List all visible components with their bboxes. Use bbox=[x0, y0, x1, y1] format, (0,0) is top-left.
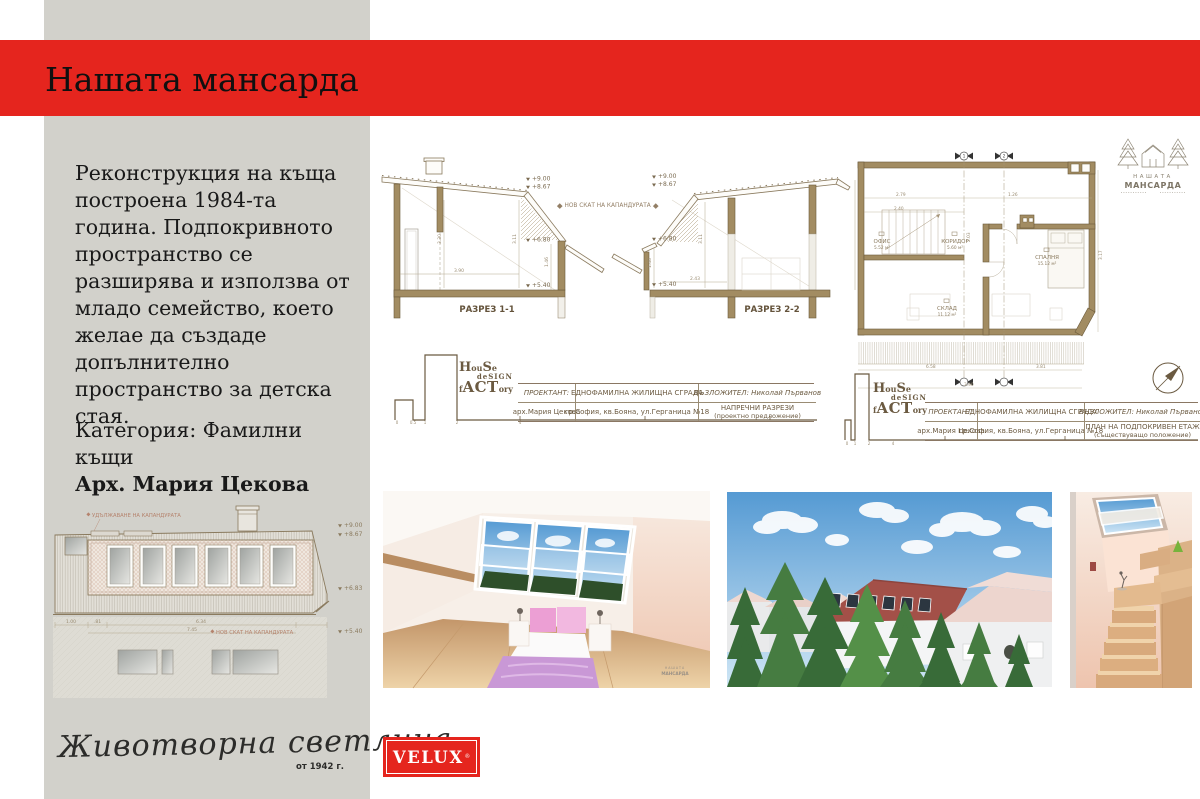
client-column: ВЪЗЛОЖИТЕЛ: Николай Първанов ПЛАН НА ПОД… bbox=[1084, 403, 1200, 440]
project-address: гр.София, кв.Бояна, ул.Герганица №18 bbox=[978, 422, 1084, 439]
annotation-text: УДЪЛЖАВАНЕ НА КАПАНДУРАТА bbox=[92, 513, 181, 519]
logo-part: ACT bbox=[462, 378, 498, 396]
dim-text: 1.46 bbox=[544, 257, 550, 267]
level-text: +9.00 bbox=[658, 173, 677, 180]
mansarda-logo-line1: НАШАТА bbox=[1133, 174, 1173, 180]
drawing-phase: (съществуващо положение) bbox=[1094, 431, 1191, 439]
dim-text: 1.00 bbox=[66, 619, 76, 625]
roof-annotation-text: НОВ СКАТ НА КАПАНДУРАТА bbox=[565, 203, 651, 209]
architect-name: Арх. Мария Цекова bbox=[75, 472, 309, 496]
logo-part: ory bbox=[499, 384, 513, 394]
dim-text: 2.40 bbox=[894, 206, 904, 212]
house-design-logo: HouSe deSIGN fACTory bbox=[873, 382, 927, 416]
logo-part: H bbox=[873, 381, 885, 396]
client-column: ВЪЗЛОЖИТЕЛ: Николай Първанов НАПРЕЧНИ РА… bbox=[698, 384, 816, 421]
render-staircase bbox=[1070, 492, 1192, 688]
north-arrow-icon bbox=[1146, 356, 1190, 400]
plan-doors bbox=[989, 229, 1017, 277]
pine-tree-icon bbox=[1118, 139, 1138, 169]
watermark-line1: НАШАТА bbox=[665, 666, 685, 670]
project-description: Реконструкция на къща построена 1984-та … bbox=[75, 160, 357, 430]
velux-logo-text: VELUX bbox=[393, 748, 464, 767]
mansarda-logo: НАШАТА МАНСАРДА bbox=[1116, 134, 1192, 196]
level-text: +5.40 bbox=[344, 628, 363, 635]
level-text: +8.67 bbox=[532, 184, 551, 191]
wall-edge bbox=[1070, 492, 1076, 688]
scale-tick: 0 bbox=[846, 441, 849, 446]
velux-logo-frame: VELUX ® bbox=[386, 740, 477, 774]
project-name: ЕДНОФАМИЛНА ЖИЛИЩНА СГРАДА bbox=[576, 384, 698, 403]
title-block-table: ПРОЕКТАНТ: арх.Мария Цекова ЕДНОФАМИЛНА … bbox=[925, 402, 1198, 441]
diamond-icon bbox=[557, 204, 562, 209]
dim-text: 7.45 bbox=[187, 627, 197, 633]
room-area: 5.60 м² bbox=[947, 245, 963, 251]
velux-logo: VELUX ® bbox=[383, 737, 480, 777]
level-text: +9.00 bbox=[532, 176, 551, 183]
dim-text: 6.34 bbox=[196, 619, 206, 625]
dim-text: 3.90 bbox=[454, 268, 464, 274]
project-column: ЕДНОФАМИЛНА ЖИЛИЩНА СГРАДА гр.София, кв.… bbox=[575, 384, 698, 421]
elevation-drawing: УДЪЛЖАВАНЕ НА КАПАНДУРАТА НОВ СКАТ НА КА… bbox=[44, 498, 370, 698]
dim-text: .81 bbox=[94, 619, 101, 625]
dim-text: 3.11 bbox=[698, 234, 704, 244]
client-name: ВЪЗЛОЖИТЕЛ: Николай Първанов bbox=[699, 384, 816, 403]
elevation-levels: +9.00 +8.67 +6.83 +5.40 bbox=[338, 522, 363, 635]
client-name: ВЪЗЛОЖИТЕЛ: Николай Първанов bbox=[1085, 403, 1200, 422]
section-marker: 1 bbox=[963, 154, 966, 159]
drawing-phase: (проектно предложение) bbox=[714, 412, 801, 420]
section-1-1-label: РАЗРЕЗ 1-1 bbox=[459, 305, 514, 315]
house-icon bbox=[1142, 145, 1164, 167]
dim-text: 3.11 bbox=[512, 234, 518, 244]
title-block-table: ПРОЕКТАНТ: арх.Мария Цекова ЕДНОФАМИЛНА … bbox=[518, 383, 814, 422]
picture-frame bbox=[1090, 562, 1096, 571]
velux-tagline: Животворна светлина bbox=[58, 724, 359, 765]
pine-tree-icon bbox=[1168, 139, 1188, 169]
section-2-2-drawing: +9.00 +8.67 +6.80 +5.40 1.48 2.43 3.11 Р… bbox=[642, 140, 870, 325]
level-text: +8.67 bbox=[658, 181, 677, 188]
room-name: КОРИДОР bbox=[941, 239, 969, 245]
scale-tick: 2 bbox=[456, 420, 459, 425]
plan-furniture bbox=[907, 230, 1084, 320]
dim-text: 2.79 bbox=[896, 192, 906, 198]
section-2-2-geometry bbox=[642, 178, 855, 319]
house-design-logo: HouSe deSIGN fACTory bbox=[459, 361, 513, 395]
render-interior: НАШАТА МАНСАРДА bbox=[383, 491, 710, 688]
section-marker: 2 bbox=[1003, 154, 1006, 159]
section-2-2-label: РАЗРЕЗ 2-2 bbox=[744, 305, 799, 315]
category-block: Категория: Фамилни къщи Арх. Мария Цеков… bbox=[75, 417, 357, 498]
scale-tick: 1 bbox=[424, 420, 427, 425]
level-text: +8.67 bbox=[344, 531, 363, 538]
project-column: ЕДНОФАМИЛНА ЖИЛИЩНА СГРАДА гр.София, кв.… bbox=[977, 403, 1084, 440]
level-text: +6.80 bbox=[658, 236, 677, 243]
scale-tick: 2 bbox=[868, 441, 871, 446]
mansarda-logo-line2: МАНСАРДА bbox=[1125, 181, 1182, 190]
room-name: СПАЛНЯ bbox=[1035, 255, 1059, 261]
title-block-sections: 0 0.5 1 2 4 HouSe deSIGN fACTory ПРОЕКТА… bbox=[395, 352, 817, 424]
room-area: 5.52 м² bbox=[874, 245, 890, 251]
tagline-since: от 1942 г. bbox=[296, 762, 344, 772]
logo-part: H bbox=[459, 360, 471, 375]
level-text: +6.80 bbox=[532, 237, 551, 244]
dim-text: 1.26 bbox=[1008, 192, 1018, 198]
page-title: Нашата мансарда bbox=[45, 60, 359, 99]
dim-text: 2.43 bbox=[690, 276, 700, 282]
plan-stairs bbox=[882, 210, 945, 254]
scale-tick: 1 bbox=[854, 441, 857, 446]
scale-tick: 4 bbox=[892, 441, 895, 446]
level-text: +6.83 bbox=[344, 585, 363, 592]
drawing-name: НАПРЕЧНИ РАЗРЕЗИ bbox=[721, 404, 794, 412]
drawing-name: ПЛАН НА ПОДПОКРИВЕН ЕТАЖ bbox=[1085, 423, 1199, 431]
level-text: +5.40 bbox=[532, 282, 551, 289]
logo-part: ACT bbox=[876, 399, 912, 417]
dim-text: 1.48 bbox=[647, 258, 653, 268]
level-text: +5.40 bbox=[658, 281, 677, 288]
elevation-geometry bbox=[53, 506, 329, 698]
designer-label: ПРОЕКТАНТ: bbox=[518, 384, 575, 403]
room-name: СКЛАД bbox=[937, 306, 958, 312]
watermark-line2: МАНСАРДА bbox=[661, 671, 689, 676]
room-area: 15.12 м² bbox=[1038, 261, 1057, 267]
velux-registered-mark: ® bbox=[465, 754, 471, 760]
roof-windows bbox=[475, 517, 635, 603]
project-name: ЕДНОФАМИЛНА ЖИЛИЩНА СГРАДА bbox=[978, 403, 1084, 422]
annotation-text: НОВ СКАТ НА КАПАНДУРАТА bbox=[216, 630, 294, 636]
room-name: ОФИС bbox=[873, 239, 890, 245]
scale-tick: 0.5 bbox=[410, 420, 417, 425]
render-exterior bbox=[727, 492, 1052, 687]
category-label: Категория: Фамилни къщи bbox=[75, 417, 357, 471]
section-1-1-drawing: +9.00 +8.67 +6.80 +5.40 3.30 3.11 3.90 1… bbox=[380, 140, 642, 325]
dim-text: 3.17 bbox=[1098, 250, 1104, 260]
competition-poster: Нашата мансарда Реконструкция на къща по… bbox=[0, 0, 1200, 799]
project-address: гр.София, кв.Бояна, ул.Герганица №18 bbox=[576, 403, 698, 420]
floor-plan-drawing: 1 2 ОФИС 5.52 м² КОРИДОР 5.60 м² СПАЛНЯ … bbox=[852, 142, 1108, 394]
dim-text: 2.03 bbox=[966, 232, 972, 242]
scale-tick: 0 bbox=[396, 420, 399, 425]
room-area: 11.12 м² bbox=[938, 312, 957, 318]
dim-text: 3.30 bbox=[437, 234, 443, 244]
level-text: +9.00 bbox=[344, 522, 363, 529]
section-1-1-geometry bbox=[382, 158, 642, 318]
plan-room-labels: ОФИС 5.52 м² КОРИДОР 5.60 м² СПАЛНЯ 15.1… bbox=[873, 232, 1059, 318]
